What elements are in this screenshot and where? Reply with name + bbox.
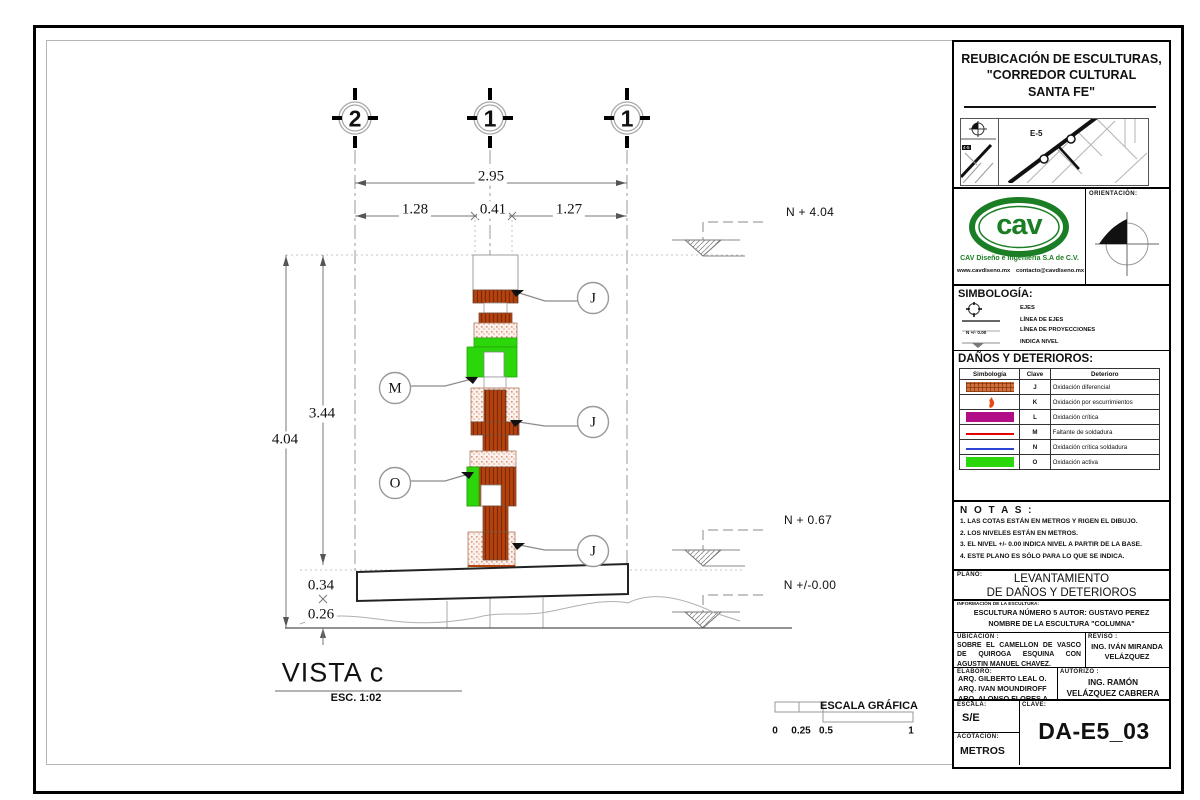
danos-header: Deterioro (1050, 369, 1159, 380)
nota-item: 1. LAS COTAS ESTÁN EN METROS Y RIGEN EL … (960, 516, 1169, 528)
dim-height-upper: 3.44 (306, 406, 338, 423)
simbologia-item-label: LÍNEA DE PROYECCIONES (1020, 327, 1095, 333)
danos-deterioro: Oxidación crítica (1050, 410, 1159, 425)
elaboro-name: ARQ. GILBERTO LEAL O. (958, 674, 1057, 684)
elaboro-box: ELABORÓ: ARQ. GILBERTO LEAL O. ARQ. IVAN… (954, 668, 1058, 700)
scale-bar-title: ESCALA GRÁFICA (820, 700, 918, 712)
notas-section: N O T A S : 1. LAS COTAS ESTÁN EN METROS… (954, 500, 1169, 569)
dim-right: 1.27 (553, 202, 585, 219)
logo-company-name: CAV Diseño e Ingeniería S.A de C.V. (954, 255, 1085, 262)
project-title-line: "CORREDOR CULTURAL (954, 67, 1169, 83)
axis-bubble-label: 1 (621, 106, 634, 133)
plano-label: PLANO: (957, 572, 982, 578)
logo-email: contacto@cavdiseno.mx (1016, 268, 1084, 274)
danos-symbol-N (966, 448, 1014, 450)
simbologia-level-text: N +/- 0.00 (966, 330, 986, 335)
info-label: INFORMACIÓN DE LA ESCULTURA: (957, 602, 1039, 607)
danos-clave: M (1020, 425, 1050, 440)
nota-item: 3. EL NIVEL +/- 0.00 INDICA NIVEL A PART… (960, 539, 1169, 551)
dim-height-total: 4.04 (269, 432, 301, 449)
nota-item: 4. ESTE PLANO ES SÓLO PARA LO QUE SE IND… (960, 551, 1169, 563)
simbologia-item-label: INDICA NIVEL (1020, 339, 1058, 345)
title-block-header: REUBICACIÓN DE ESCULTURAS, "CORREDOR CUL… (954, 42, 1169, 187)
axis-bubble-label: 1 (484, 106, 497, 133)
logo-row: cav CAV Diseño e Ingeniería S.A de C.V. … (954, 187, 1169, 284)
info-section: INFORMACIÓN DE LA ESCULTURA: ESCULTURA N… (954, 599, 1169, 632)
danos-symbol-L (966, 412, 1014, 422)
ubicacion-box: UBICACIÓN : SOBRE EL CAMELLON DE VASCO D… (954, 633, 1086, 668)
callout-label: J (590, 415, 596, 432)
orientation-box: ORIENTACIÓN: (1085, 189, 1169, 286)
danos-symbol-M (966, 433, 1014, 435)
simbologia-title: SIMBOLOGÍA: (954, 286, 1169, 300)
danos-deterioro: Oxidación activa (1050, 455, 1159, 470)
escala-label: ESCALA: (957, 702, 986, 708)
level-label: N + 0.67 (784, 513, 832, 527)
reviso-box: REVISO : ING. IVÁN MIRANDA VELÁZQUEZ (1085, 633, 1169, 668)
callout-label: O (390, 476, 401, 493)
danos-header: Clave (1020, 369, 1050, 380)
scale-bar-tick: 1 (908, 726, 914, 737)
elaboro-row: ELABORÓ: ARQ. GILBERTO LEAL O. ARQ. IVAN… (954, 667, 1169, 699)
info-line: NOMBRE DE LA ESCULTURA "COLUMNA" (954, 619, 1169, 630)
location-map: 4-5 (960, 118, 1149, 184)
danos-row: N Oxidación crítica soldadura (960, 440, 1160, 455)
map-area-label: E-5 (1030, 129, 1042, 138)
danos-table: Simbología Clave Deterioro J Oxidación d… (959, 368, 1160, 470)
danos-header-row: Simbología Clave Deterioro (960, 369, 1160, 380)
map-graphic (997, 119, 1147, 183)
level-label: N + 4.04 (786, 205, 834, 219)
clave-label: CLAVE: (1022, 702, 1046, 708)
title-block: REUBICACIÓN DE ESCULTURAS, "CORREDOR CUL… (952, 40, 1171, 769)
view-scale: ESC. 1:02 (331, 692, 382, 704)
level-markers (672, 222, 763, 628)
location-map-mini: 4-5 (960, 118, 999, 186)
title-divider (964, 106, 1156, 108)
callout-label: J (590, 291, 596, 308)
danos-clave: N (1020, 440, 1050, 455)
acotacion-label: ACOTACIÓN: (957, 734, 999, 740)
danos-deterioro: Oxidación diferencial (1050, 380, 1159, 395)
dim-left: 1.28 (399, 202, 431, 219)
location-map-main: E-5 (997, 118, 1149, 186)
north-compass-icon (1085, 199, 1169, 284)
mini-map-graphic (961, 119, 996, 183)
dim-center: 0.41 (477, 202, 509, 219)
view-title: VISTA c (282, 658, 385, 689)
danos-symbol-O (966, 457, 1014, 467)
danos-clave: K (1020, 395, 1050, 410)
callout-label: J (590, 544, 596, 561)
level-label: N +/-0.00 (784, 578, 836, 592)
plano-section: PLANO: LEVANTAMIENTO DE DAÑOS Y DETERIOR… (954, 569, 1169, 599)
danos-clave: J (1020, 380, 1050, 395)
ubicacion-row: UBICACIÓN : SOBRE EL CAMELLON DE VASCO D… (954, 632, 1169, 667)
callout-label: M (388, 381, 401, 398)
dim-total: 2.95 (475, 169, 507, 186)
project-title-line: REUBICACIÓN DE ESCULTURAS, (954, 51, 1169, 67)
plano-line: LEVANTAMIENTO (954, 571, 1169, 587)
dim-below-base: 0.26 (305, 607, 337, 624)
acotacion-box: ACOTACIÓN: METROS (954, 732, 1019, 766)
danos-header: Simbología (960, 369, 1020, 380)
escala-box: ESCALA: S/E (954, 701, 1019, 732)
danos-title: DAÑOS Y DETERIOROS: (954, 351, 1169, 365)
danos-deterioro: Faltante de soldadura (1050, 425, 1159, 440)
elaboro-name: ARQ. IVAN MOUNDIROFF (958, 684, 1057, 694)
simbologia-item-label: EJES (1020, 305, 1035, 311)
scale-bar-tick: 0 (772, 726, 778, 737)
simbologia-item-label: LÍNEA DE EJES (1020, 317, 1063, 323)
axis-bubble-label: 2 (349, 106, 362, 133)
danos-row: K Oxidación por escurrimientos (960, 395, 1160, 410)
escala-row: ESCALA: S/E ACOTACIÓN: METROS CLAVE: DA-… (954, 699, 1169, 763)
autorizo-box: AUTORIZÓ : ING. RAMÓN VELÁZQUEZ CABRERA (1057, 668, 1169, 700)
logo-text: cav (996, 209, 1041, 242)
danos-deterioro: Oxidación crítica soldadura (1050, 440, 1159, 455)
elaboro-label: ELABORÓ: (957, 669, 992, 675)
company-logo: cav CAV Diseño e Ingeniería S.A de C.V. … (954, 189, 1086, 286)
danos-row: O Oxidación activa (960, 455, 1160, 470)
dim-base: 0.34 (305, 578, 337, 595)
base-plinth (357, 564, 628, 628)
autorizo-label: AUTORIZÓ : (1060, 669, 1099, 675)
nota-item: 2. LOS NIVELES ESTÁN EN METROS. (960, 528, 1169, 540)
mini-map-label: 4-5 (962, 145, 971, 150)
danos-section: DAÑOS Y DETERIOROS: Simbología Clave Det… (954, 350, 1169, 500)
plan-sheet: 2 1 1 2.95 1.28 0.41 1.27 4.04 3.44 0.34… (0, 0, 1200, 800)
danos-symbol-K (966, 396, 1014, 409)
danos-row: J Oxidación diferencial (960, 380, 1160, 395)
logo-website: www.cavdiseno.mx (957, 268, 1010, 274)
scale-bar-tick: 0.25 (791, 726, 810, 737)
danos-deterioro: Oxidación por escurrimientos (1050, 395, 1159, 410)
simbologia-section: SIMBOLOGÍA: N +/- 0.00 EJES LÍNEA DE EJE… (954, 284, 1169, 350)
reviso-label: REVISO : (1088, 634, 1118, 640)
project-title-line: SANTA FE" (954, 84, 1169, 100)
clave-box: CLAVE: DA-E5_03 (1019, 701, 1169, 765)
notas-title: N O T A S : (960, 505, 1169, 516)
ubicacion-label: UBICACIÓN : (957, 634, 999, 640)
scale-bar-tick: 0.5 (819, 726, 833, 737)
danos-row: M Faltante de soldadura (960, 425, 1160, 440)
orientation-label: ORIENTACIÓN: (1089, 191, 1137, 197)
danos-clave: O (1020, 455, 1050, 470)
danos-row: L Oxidación crítica (960, 410, 1160, 425)
danos-symbol-J (966, 382, 1014, 392)
danos-clave: L (1020, 410, 1050, 425)
simbologia-symbols (960, 302, 1012, 350)
escala-column: ESCALA: S/E ACOTACIÓN: METROS (954, 701, 1020, 765)
